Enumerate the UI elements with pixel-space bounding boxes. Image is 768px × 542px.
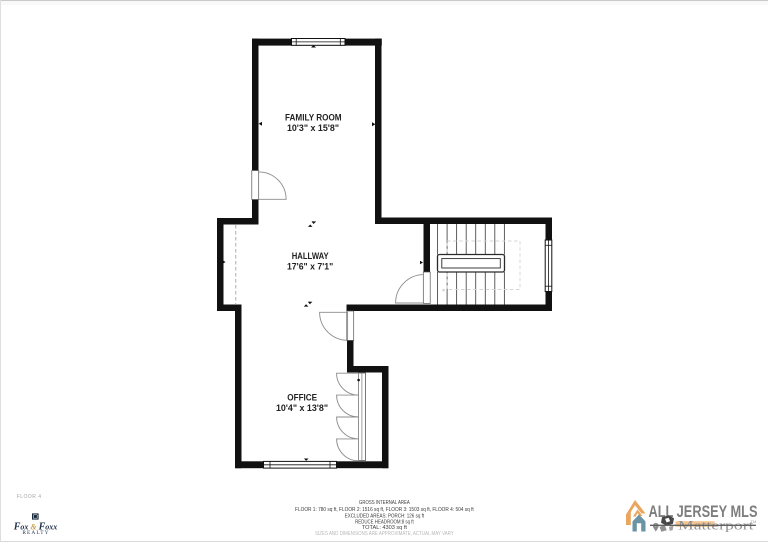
svg-text:TM: TM	[751, 519, 757, 524]
svg-text:SIZES AND DIMENSIONS ARE APPRO: SIZES AND DIMENSIONS ARE APPROXIMATE, AC…	[315, 531, 454, 537]
svg-text:REALTY: REALTY	[22, 530, 49, 536]
svg-text:10'4" x 13'8": 10'4" x 13'8"	[276, 402, 328, 413]
svg-text:FLOOR 1: 780 sq ft, FLOOR 2: 1: FLOOR 1: 780 sq ft, FLOOR 2: 1516 sq ft,…	[295, 507, 474, 513]
svg-text:HALLWAY: HALLWAY	[292, 250, 330, 261]
svg-text:OFFICE: OFFICE	[287, 391, 317, 402]
svg-text:17'6" x 7'1": 17'6" x 7'1"	[287, 261, 333, 272]
svg-text:GROSS INTERNAL AREA: GROSS INTERNAL AREA	[359, 500, 410, 506]
svg-text:FLOOR 4: FLOOR 4	[17, 494, 42, 500]
svg-text:FAMILY ROOM: FAMILY ROOM	[285, 112, 342, 123]
svg-text:10'3" x 15'8": 10'3" x 15'8"	[287, 122, 339, 133]
